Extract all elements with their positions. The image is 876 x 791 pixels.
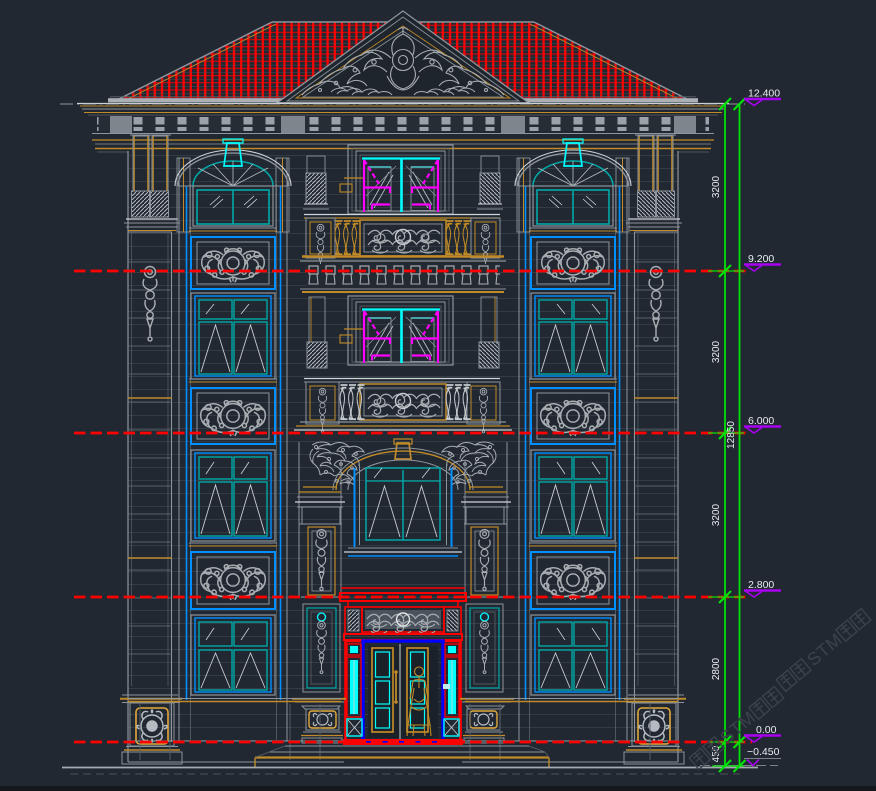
- svg-text:2.800: 2.800: [748, 579, 774, 591]
- svg-text:3200: 3200: [711, 175, 722, 198]
- svg-text:0.00: 0.00: [756, 724, 777, 736]
- svg-text:3200: 3200: [711, 340, 722, 363]
- svg-text:12.400: 12.400: [748, 88, 780, 100]
- svg-text:−0.450: −0.450: [747, 746, 780, 758]
- svg-text:9.200: 9.200: [748, 253, 774, 265]
- svg-text:6.000: 6.000: [748, 415, 774, 427]
- svg-text:12850: 12850: [726, 421, 737, 449]
- svg-text:3200: 3200: [711, 503, 722, 526]
- svg-text:2800: 2800: [711, 657, 722, 680]
